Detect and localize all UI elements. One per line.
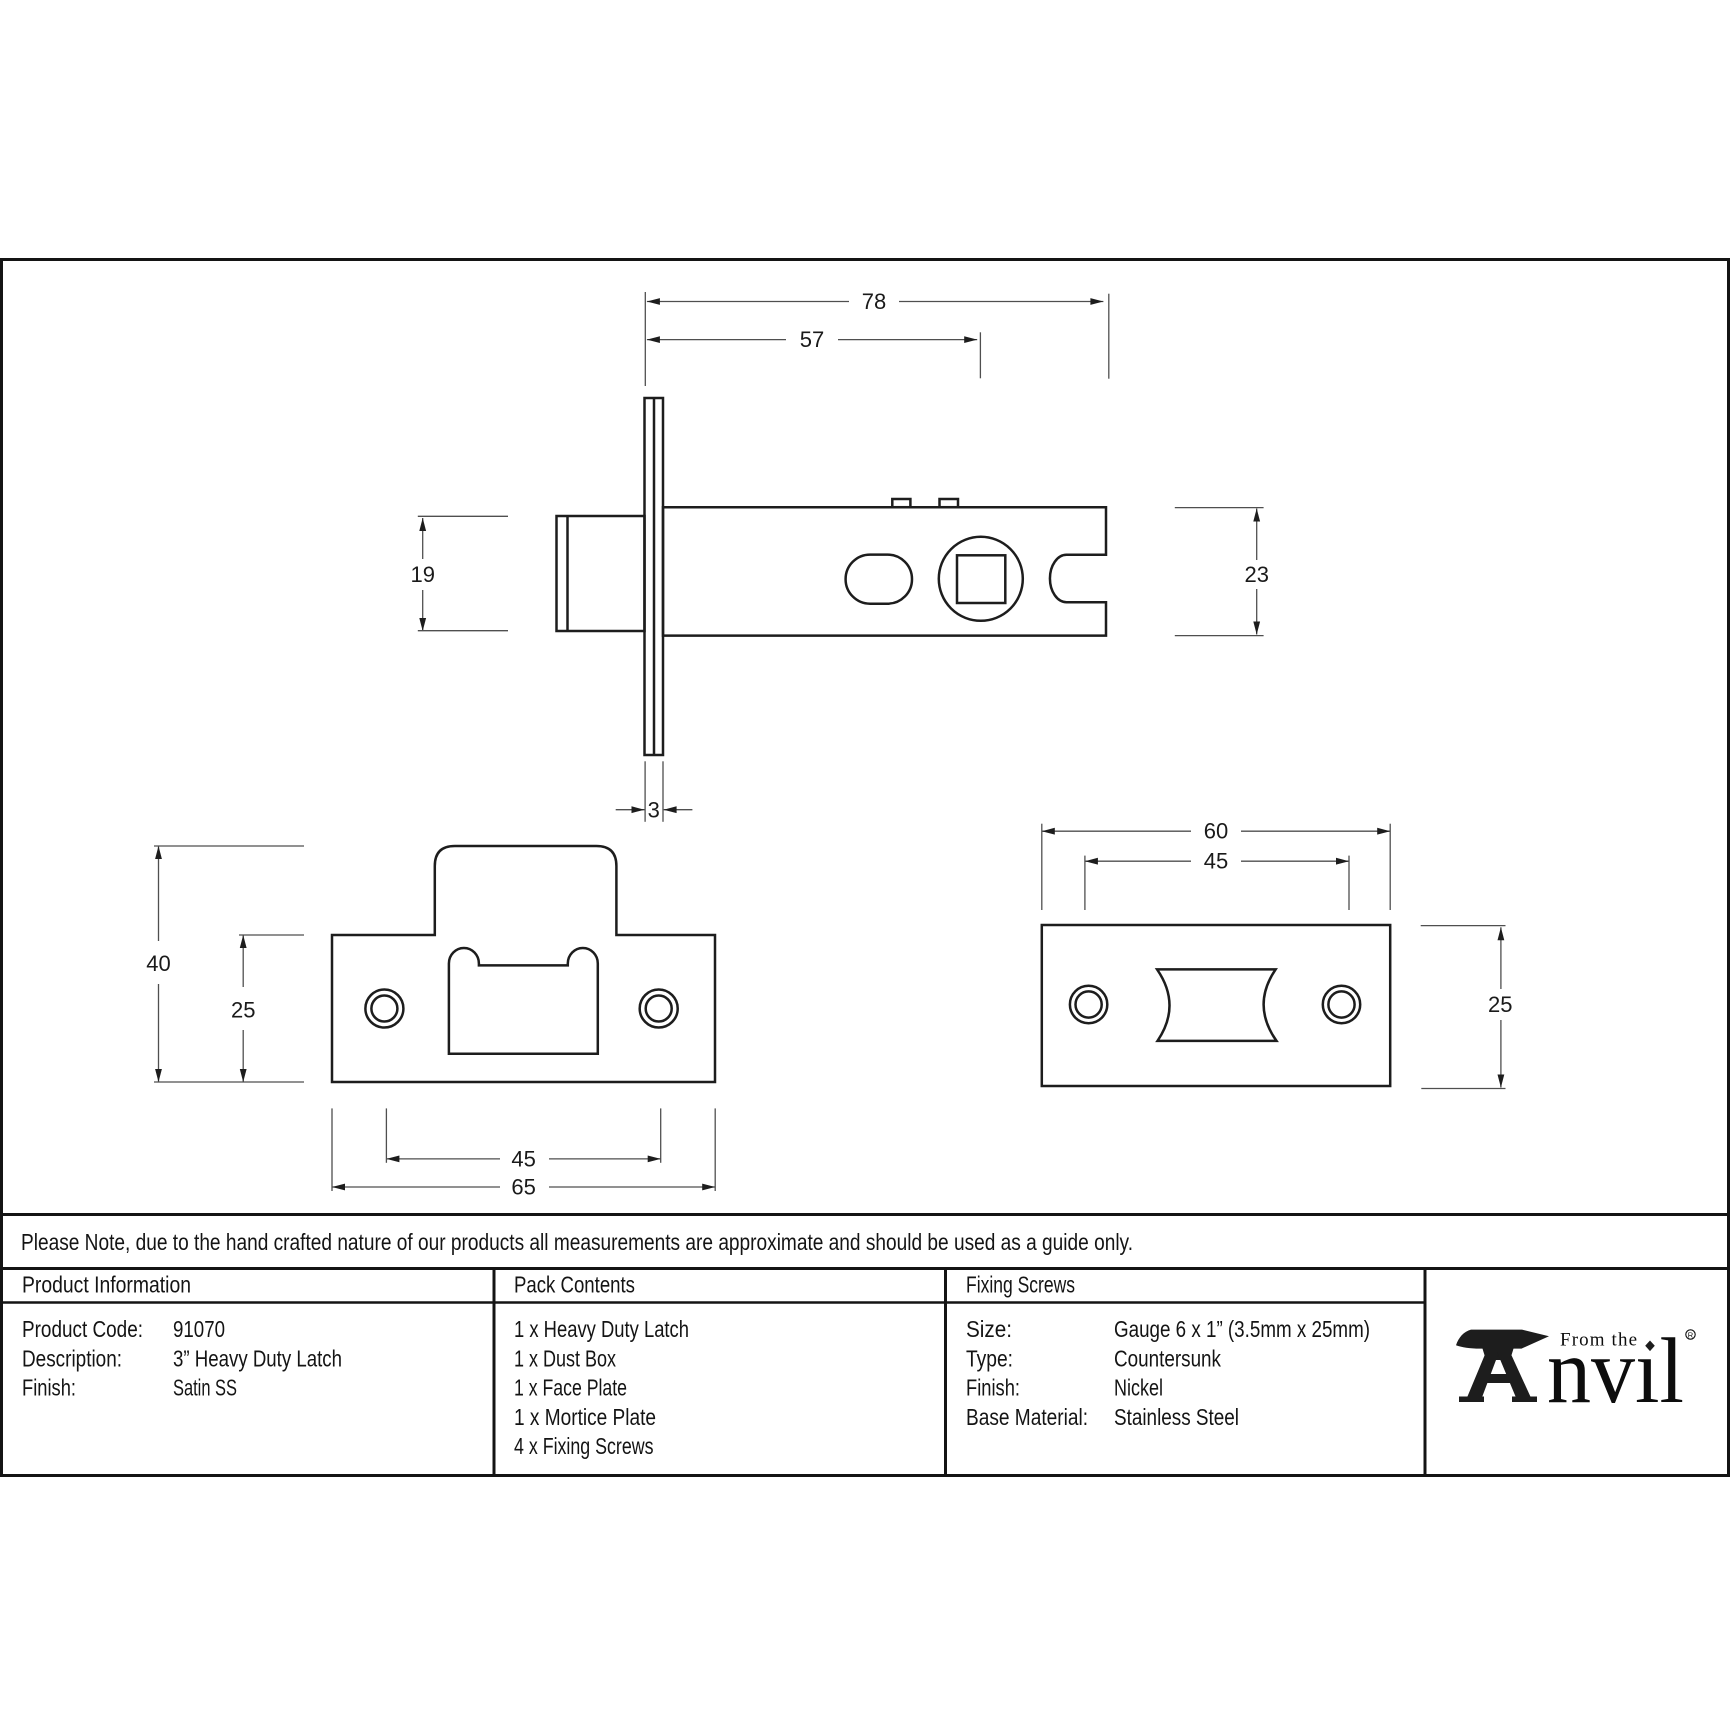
svg-text:Product Information: Product Information — [22, 1271, 191, 1297]
svg-text:91070: 91070 — [173, 1316, 225, 1342]
svg-text:23: 23 — [1244, 562, 1268, 587]
svg-text:Base Material:: Base Material: — [966, 1404, 1088, 1430]
svg-text:R: R — [1688, 1330, 1694, 1339]
svg-text:3: 3 — [648, 798, 660, 823]
svg-text:Countersunk: Countersunk — [1114, 1345, 1221, 1371]
svg-text:1 x Dust Box: 1 x Dust Box — [514, 1345, 616, 1371]
svg-text:1 x Heavy Duty Latch: 1 x Heavy Duty Latch — [514, 1316, 689, 1342]
svg-text:Gauge 6 x 1” (3.5mm x 25mm): Gauge 6 x 1” (3.5mm x 25mm) — [1114, 1316, 1370, 1342]
svg-text:3” Heavy Duty Latch: 3” Heavy Duty Latch — [173, 1345, 342, 1371]
svg-text:57: 57 — [800, 327, 824, 352]
svg-text:Type:: Type: — [966, 1345, 1013, 1371]
svg-text:Product Code:: Product Code: — [22, 1316, 143, 1342]
svg-text:1 x Face Plate: 1 x Face Plate — [514, 1375, 627, 1401]
svg-text:Finish:: Finish: — [966, 1375, 1020, 1401]
svg-text:Fixing Screws: Fixing Screws — [966, 1271, 1075, 1297]
svg-text:Stainless Steel: Stainless Steel — [1114, 1404, 1239, 1430]
svg-text:From the: From the — [1560, 1330, 1637, 1351]
svg-text:Please Note, due to the hand c: Please Note, due to the hand crafted nat… — [21, 1229, 1133, 1255]
svg-text:Satin SS: Satin SS — [173, 1375, 237, 1401]
svg-text:25: 25 — [1488, 992, 1512, 1017]
svg-text:4 x Fixing Screws: 4 x Fixing Screws — [514, 1433, 654, 1459]
svg-text:Finish:: Finish: — [22, 1375, 76, 1401]
svg-text:Nickel: Nickel — [1114, 1375, 1163, 1401]
svg-text:Pack Contents: Pack Contents — [514, 1271, 635, 1297]
svg-text:Size:: Size: — [966, 1316, 1012, 1342]
svg-text:60: 60 — [1204, 819, 1228, 844]
svg-text:78: 78 — [862, 289, 886, 314]
svg-text:45: 45 — [511, 1146, 535, 1171]
svg-text:65: 65 — [511, 1175, 535, 1200]
svg-text:19: 19 — [410, 562, 434, 587]
svg-text:40: 40 — [146, 951, 170, 976]
svg-text:25: 25 — [231, 998, 255, 1023]
svg-text:Description:: Description: — [22, 1345, 122, 1371]
svg-text:1 x Mortice Plate: 1 x Mortice Plate — [514, 1404, 656, 1430]
svg-text:45: 45 — [1204, 849, 1228, 874]
